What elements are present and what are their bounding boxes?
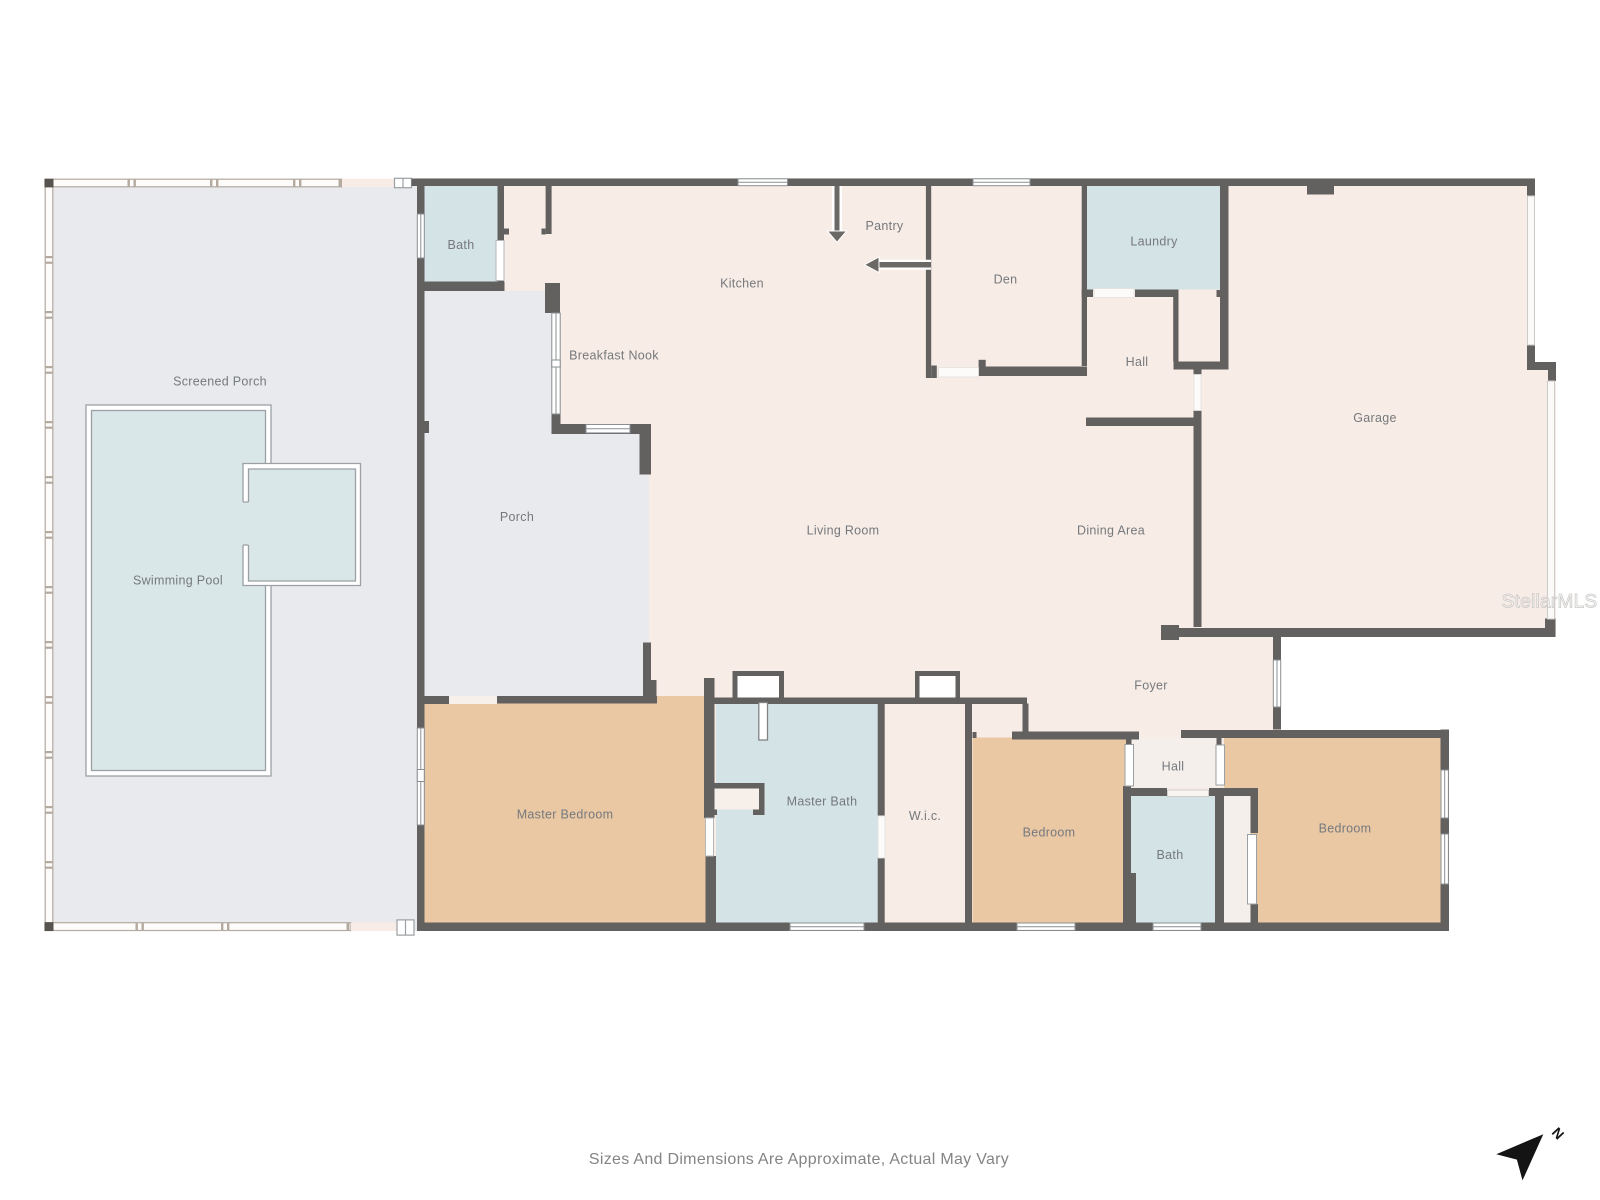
svg-text:Porch: Porch (500, 510, 534, 524)
svg-text:Sizes And Dimensions Are Appro: Sizes And Dimensions Are Approximate, Ac… (589, 1151, 1009, 1168)
svg-text:Dining Area: Dining Area (1077, 524, 1145, 538)
svg-text:Garage: Garage (1353, 411, 1397, 425)
svg-text:Pantry: Pantry (866, 219, 904, 233)
svg-text:Bedroom: Bedroom (1319, 822, 1372, 836)
svg-text:Screened Porch: Screened Porch (173, 375, 267, 389)
svg-text:Breakfast Nook: Breakfast Nook (569, 349, 659, 363)
svg-text:Hall: Hall (1126, 355, 1149, 369)
svg-text:Bath: Bath (1157, 848, 1184, 862)
svg-text:StellarMLS: StellarMLS (1502, 592, 1598, 613)
svg-text:Hall: Hall (1162, 760, 1185, 774)
svg-text:Den: Den (994, 273, 1018, 287)
svg-text:Living Room: Living Room (807, 524, 880, 538)
svg-text:Laundry: Laundry (1130, 235, 1178, 249)
svg-text:Bath: Bath (448, 238, 475, 252)
svg-text:Foyer: Foyer (1134, 679, 1167, 693)
svg-text:Bedroom: Bedroom (1023, 826, 1076, 840)
svg-text:W.i.c.: W.i.c. (909, 809, 941, 823)
svg-text:Kitchen: Kitchen (720, 277, 764, 291)
svg-text:Master Bedroom: Master Bedroom (517, 808, 614, 822)
svg-text:Master Bath: Master Bath (787, 795, 858, 809)
svg-text:Swimming Pool: Swimming Pool (133, 574, 223, 588)
